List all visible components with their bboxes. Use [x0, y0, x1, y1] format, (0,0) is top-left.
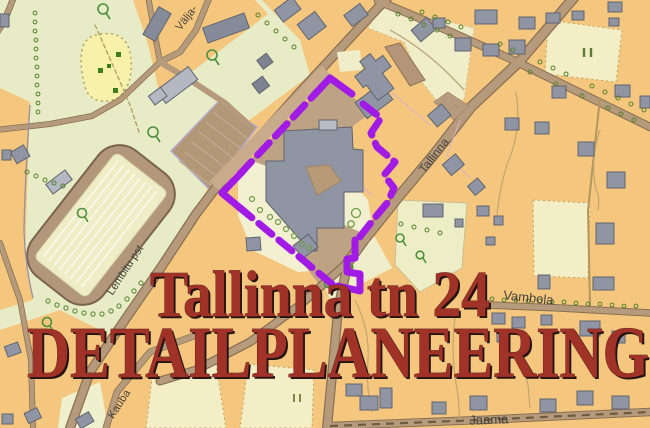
svg-text:Jaama: Jaama [469, 411, 509, 427]
svg-text:DETAILPLANEERING: DETAILPLANEERING [27, 312, 649, 393]
